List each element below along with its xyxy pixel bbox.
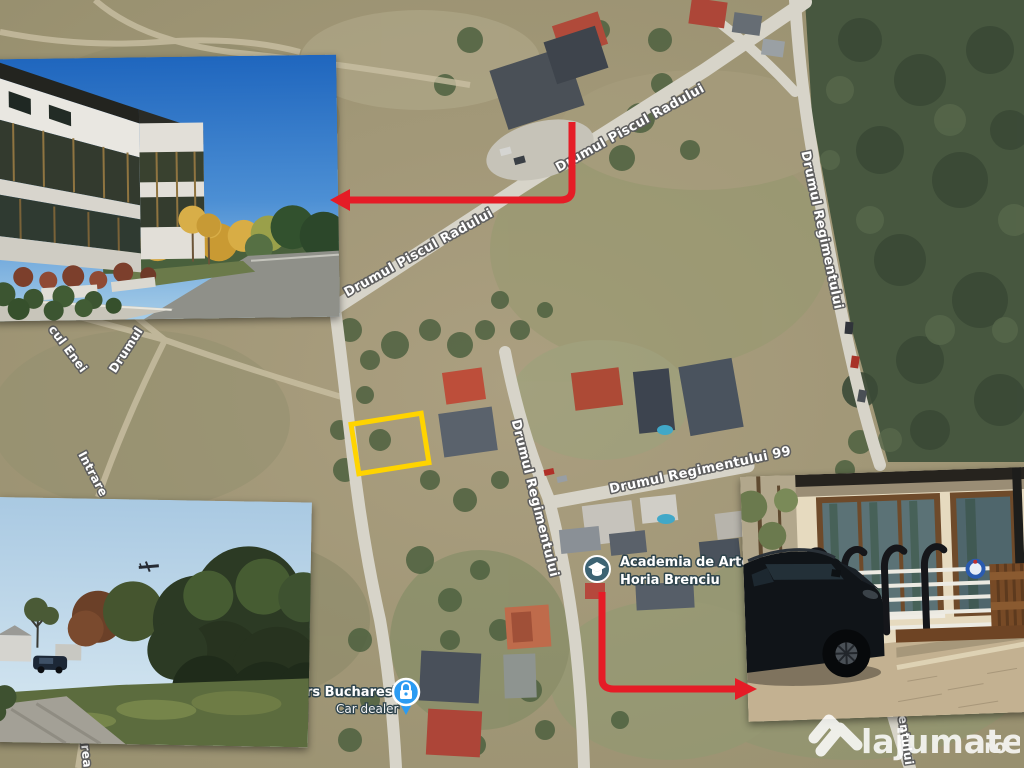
inset-photo-street-trees <box>0 497 312 747</box>
poi-school-line1: Academia de Arte <box>620 555 750 570</box>
watermark: lajumate .ro <box>805 705 1020 768</box>
watermark-tld: .ro <box>977 736 1007 758</box>
photo3-scene <box>740 467 1024 722</box>
listing-collage: Drumul Piscul Radului Drumul Piscul Radu… <box>0 0 1024 768</box>
photo2-scene <box>0 497 312 747</box>
plot-highlight-rectangle <box>348 410 432 476</box>
poi-car-dealer-line2: Car dealer <box>336 702 399 716</box>
inset-photo-building-street <box>0 55 340 322</box>
poi-school-line2: Horia Brenciu <box>620 573 720 588</box>
photo1-scene <box>0 55 340 322</box>
inset-photo-car-building <box>740 467 1024 722</box>
poi-car-dealer-line1: rs Bucharest <box>306 685 399 700</box>
lajumate-logo-icon <box>814 720 857 751</box>
